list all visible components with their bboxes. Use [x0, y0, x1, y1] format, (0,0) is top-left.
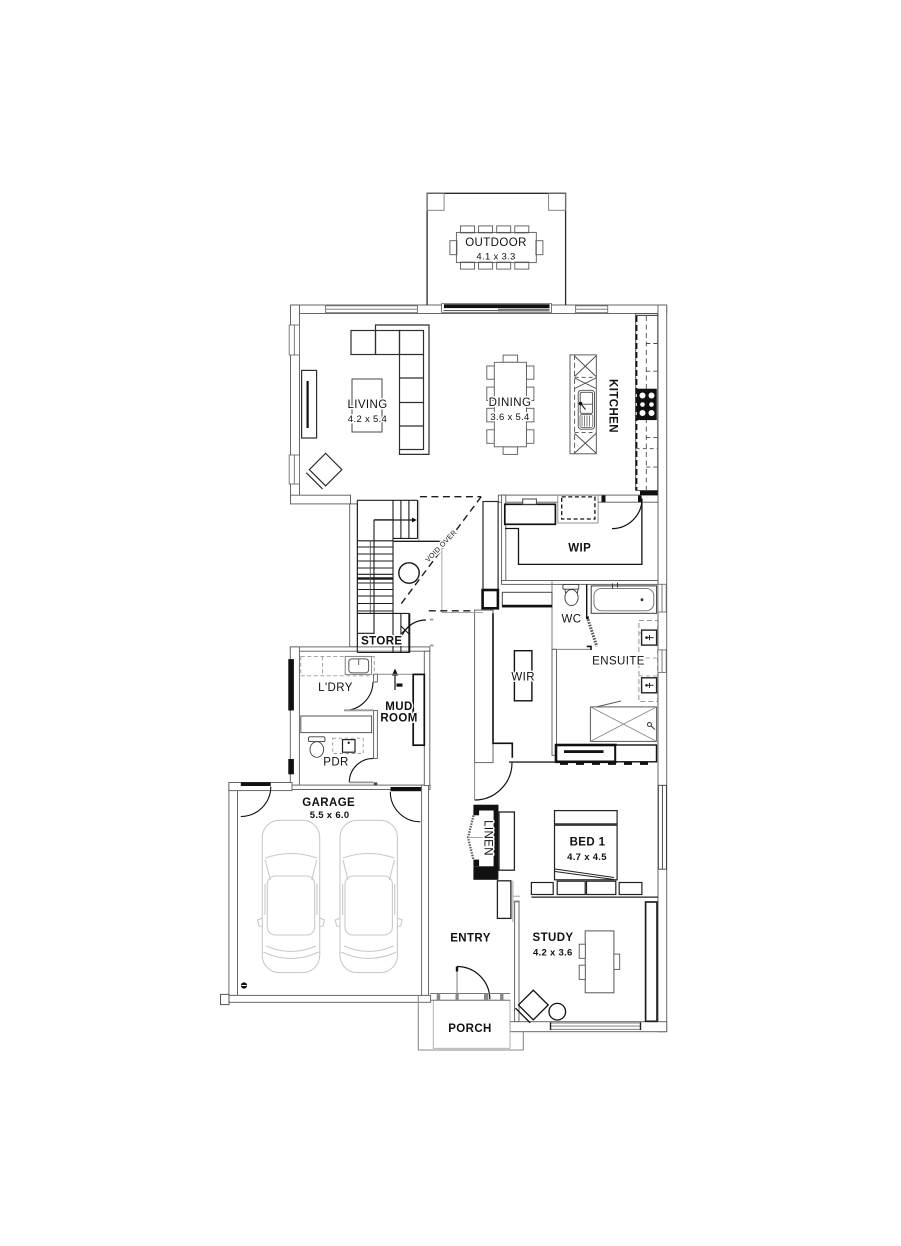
svg-text:LINEN: LINEN — [482, 820, 494, 856]
svg-text:3.6 x 5.4: 3.6 x 5.4 — [490, 412, 529, 423]
svg-text:WC: WC — [562, 614, 582, 626]
svg-text:STORE: STORE — [361, 636, 402, 648]
svg-text:ENSUITE: ENSUITE — [592, 656, 645, 668]
svg-text:BED 1: BED 1 — [570, 837, 606, 849]
svg-text:L'DRY: L'DRY — [318, 682, 353, 694]
svg-text:LIVING: LIVING — [347, 399, 387, 411]
svg-text:ROOM: ROOM — [380, 713, 417, 725]
svg-text:OUTDOOR: OUTDOOR — [465, 237, 527, 249]
svg-text:5.5 x 6.0: 5.5 x 6.0 — [310, 810, 350, 821]
svg-text:GARAGE: GARAGE — [302, 797, 355, 809]
svg-text:MUD: MUD — [385, 701, 412, 713]
svg-text:4.1 x 3.3: 4.1 x 3.3 — [476, 252, 515, 263]
svg-text:PORCH: PORCH — [448, 1023, 492, 1035]
svg-text:STUDY: STUDY — [533, 932, 574, 944]
svg-text:4.7 x 4.5: 4.7 x 4.5 — [567, 852, 607, 863]
svg-text:PDR: PDR — [323, 757, 348, 769]
svg-text:4.2 x 3.6: 4.2 x 3.6 — [533, 948, 573, 959]
svg-text:WIR: WIR — [511, 672, 535, 684]
svg-text:ENTRY: ENTRY — [450, 933, 491, 945]
svg-text:DINING: DINING — [489, 397, 532, 409]
svg-text:WIP: WIP — [568, 543, 591, 555]
svg-text:KITCHEN: KITCHEN — [607, 379, 619, 433]
svg-text:4.2 x 5.4: 4.2 x 5.4 — [348, 414, 387, 425]
